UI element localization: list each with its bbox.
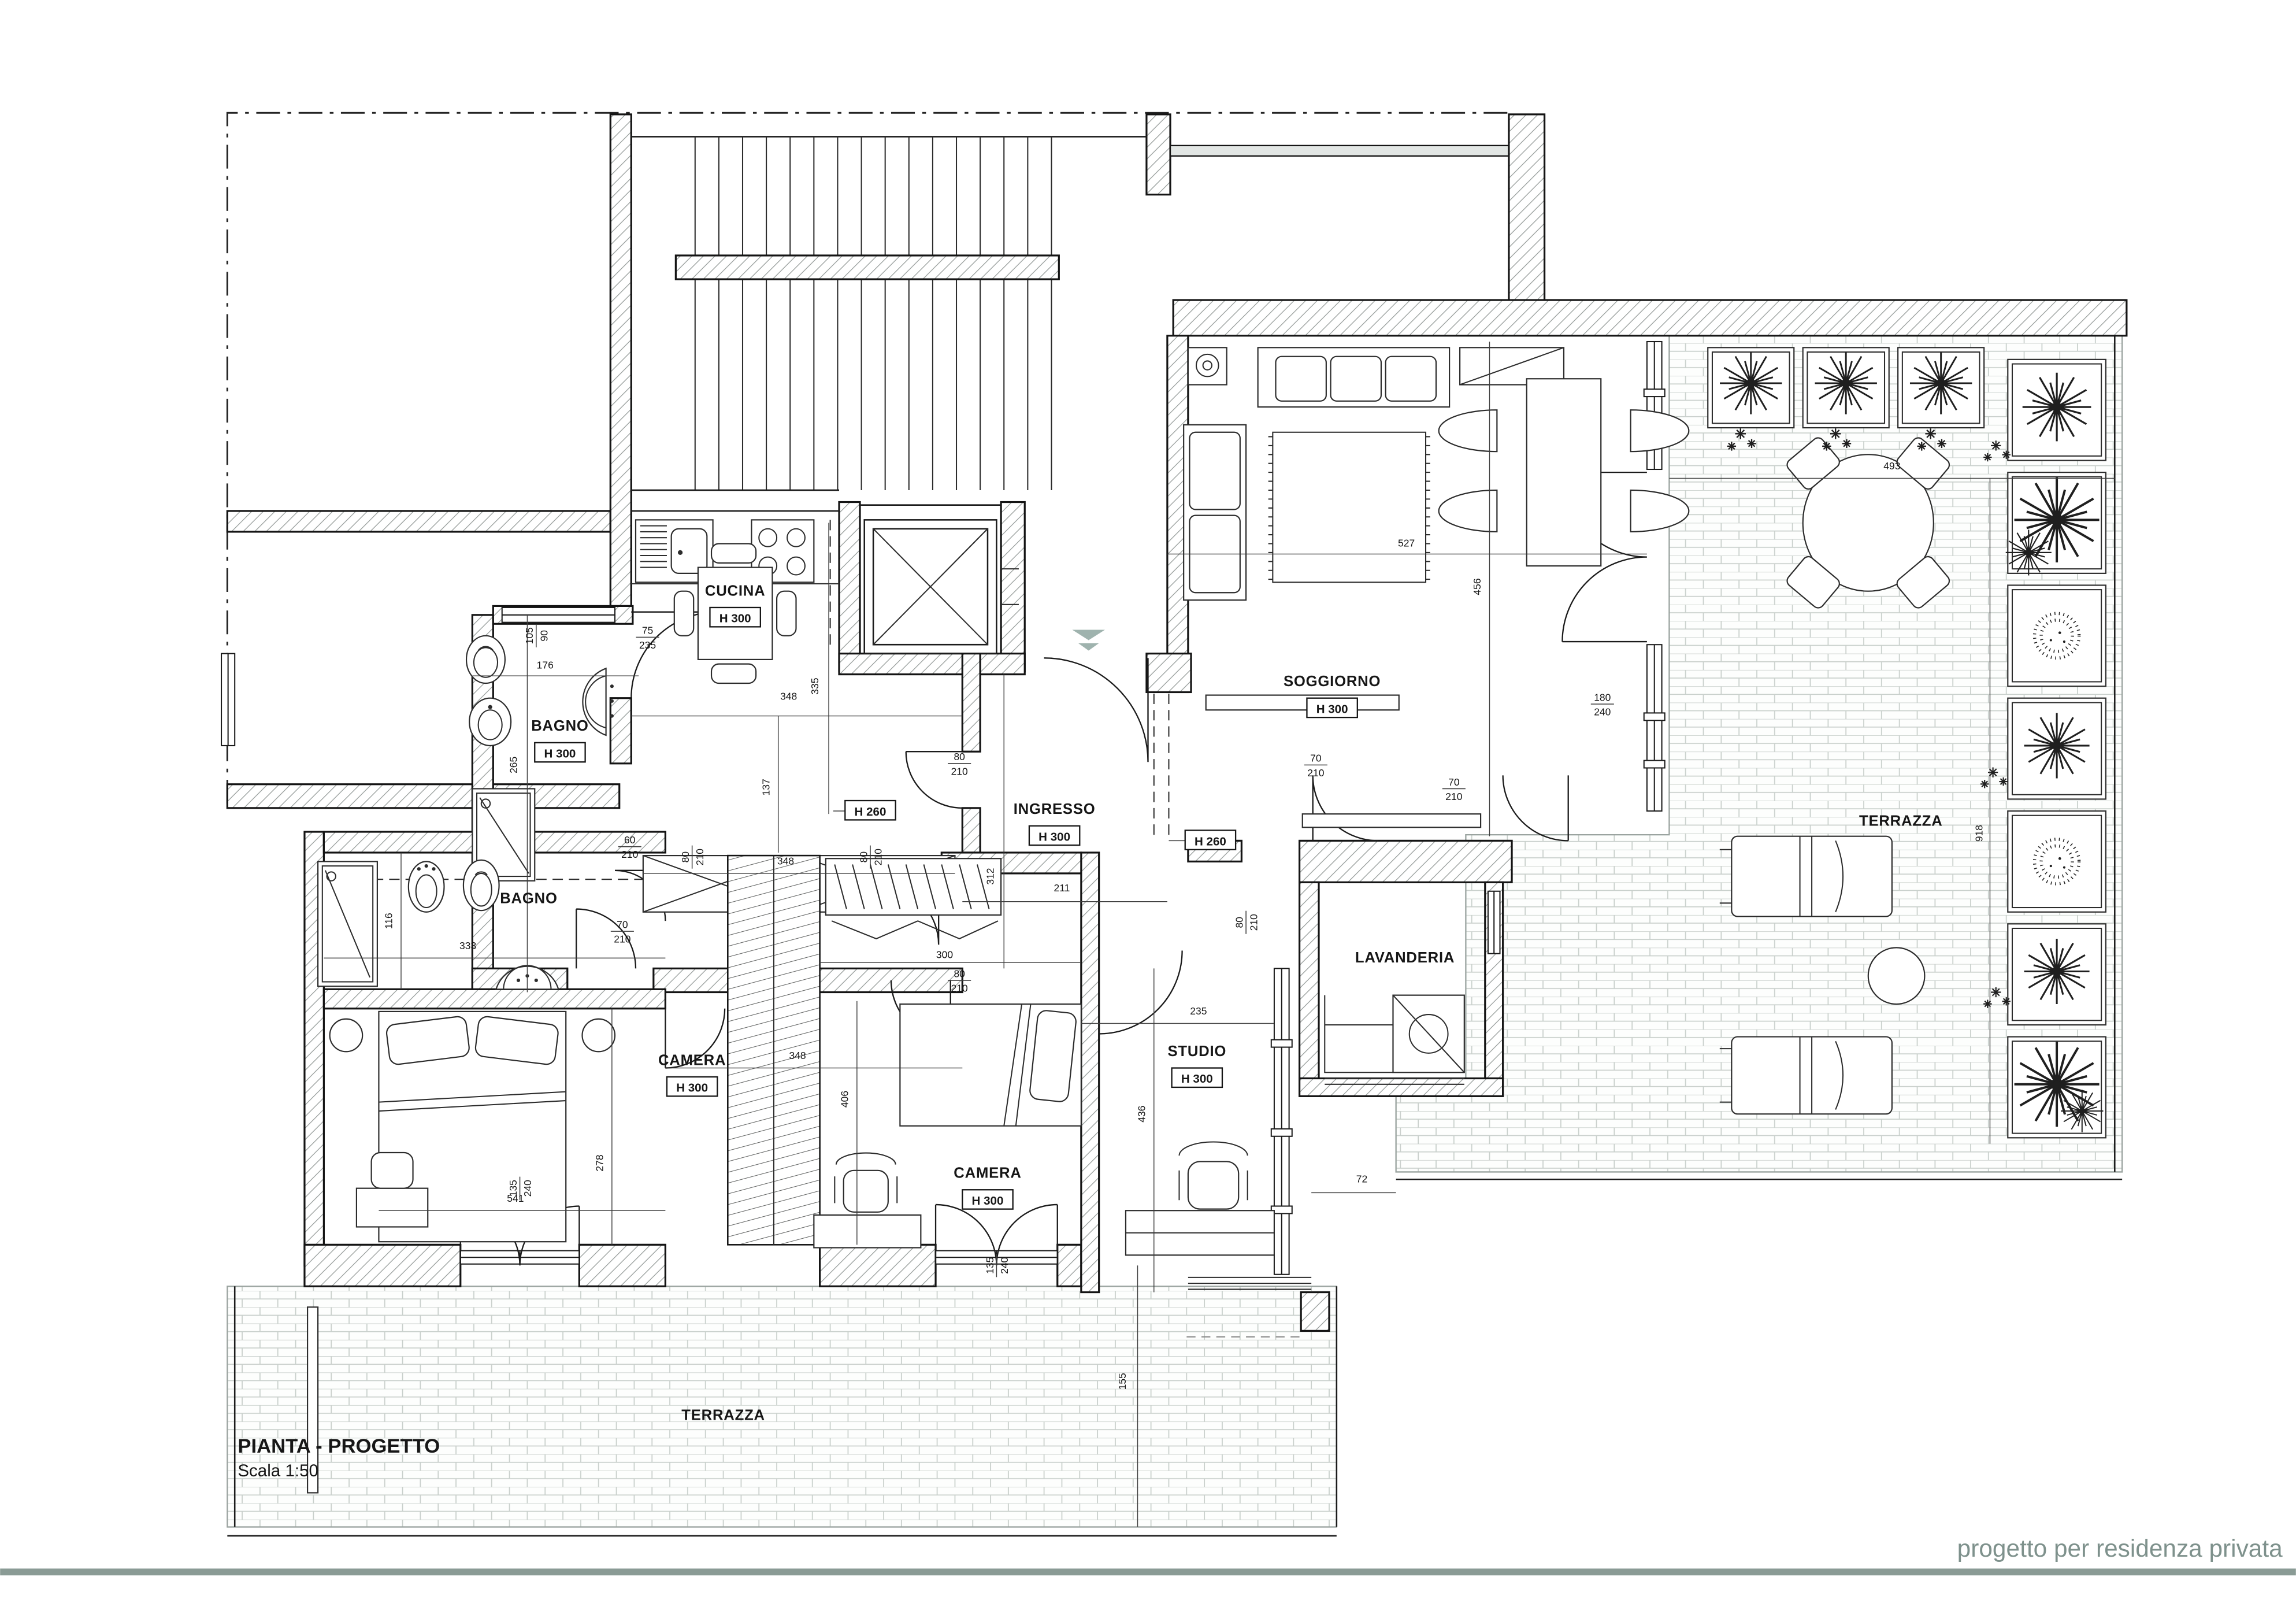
ceiling-height-label: H 260 <box>845 801 895 820</box>
svg-text:BAGNO: BAGNO <box>500 890 557 906</box>
svg-text:211: 211 <box>1054 882 1070 894</box>
svg-text:LAVANDERIA: LAVANDERIA <box>1355 950 1455 966</box>
svg-text:210: 210 <box>951 982 968 994</box>
dimension-label: 180240 <box>1591 691 1614 717</box>
chair <box>1179 1142 1247 1209</box>
svg-text:75: 75 <box>642 625 653 636</box>
svg-text:INGRESSO: INGRESSO <box>1014 801 1096 817</box>
room-label: STUDIOH 300 <box>1167 1043 1226 1087</box>
drawing-sheet: CUCINAH 300BAGNOH 300INGRESSOH 300SOGGIO… <box>0 0 2296 1622</box>
laundry-window <box>1488 891 1500 954</box>
dimension-label: 80210 <box>948 751 971 777</box>
dimension-label: 235 <box>1190 1005 1207 1017</box>
svg-text:137: 137 <box>760 779 771 795</box>
stair-landing <box>676 255 1059 279</box>
svg-text:80: 80 <box>680 851 691 863</box>
svg-text:H 300: H 300 <box>719 612 751 625</box>
terrace-bottom-paving <box>227 1286 1336 1536</box>
svg-text:210: 210 <box>614 934 630 945</box>
laundry-fixtures <box>1325 995 1464 1084</box>
svg-text:H 300: H 300 <box>1181 1072 1213 1086</box>
sun-lounger <box>1720 836 1892 917</box>
dimension-label: 137 <box>760 779 771 795</box>
svg-text:918: 918 <box>1974 825 1985 842</box>
svg-text:180: 180 <box>1594 691 1611 703</box>
svg-text:H 300: H 300 <box>1038 830 1070 843</box>
svg-text:70: 70 <box>617 919 628 930</box>
svg-text:H 260: H 260 <box>855 805 886 819</box>
room-label: INGRESSOH 300 <box>1014 801 1096 845</box>
dimension-label: 333 <box>459 940 476 951</box>
svg-text:60: 60 <box>624 834 636 846</box>
room-label: CAMERAH 300 <box>954 1165 1021 1209</box>
svg-text:406: 406 <box>839 1091 850 1108</box>
desk <box>814 1215 921 1248</box>
svg-text:235: 235 <box>639 639 656 651</box>
sideboard <box>1303 814 1481 827</box>
dimension-label: 527 <box>1398 538 1415 549</box>
camera1-furniture <box>330 1012 615 1242</box>
footer-bar <box>0 1568 2296 1575</box>
svg-text:116: 116 <box>383 913 395 929</box>
desk <box>357 1188 428 1227</box>
dimension-label: 918 <box>1974 825 1985 842</box>
svg-text:BAGNO: BAGNO <box>531 718 588 734</box>
svg-text:H 300: H 300 <box>1316 702 1348 716</box>
svg-text:265: 265 <box>507 757 519 773</box>
svg-text:348: 348 <box>777 856 794 867</box>
dimension-label: 155 <box>1117 1373 1128 1390</box>
rug <box>1268 432 1430 583</box>
sofa <box>1258 347 1449 407</box>
room-label: TERRAZZA <box>1859 813 1943 829</box>
dimension-label: 80210 <box>1233 911 1259 934</box>
svg-text:TERRAZZA: TERRAZZA <box>1859 813 1943 829</box>
svg-text:348: 348 <box>789 1050 806 1061</box>
svg-text:210: 210 <box>621 849 638 860</box>
turntable <box>1188 347 1227 384</box>
dimension-label: 348 <box>780 690 797 702</box>
floor-plan-svg: CUCINAH 300BAGNOH 300INGRESSOH 300SOGGIO… <box>0 0 2296 1622</box>
svg-text:527: 527 <box>1398 538 1415 549</box>
svg-text:80: 80 <box>858 851 869 863</box>
camera2-furniture <box>814 858 1081 1247</box>
svg-text:240: 240 <box>522 1180 533 1197</box>
dimension-label: 70210 <box>1304 753 1327 779</box>
nightstand <box>330 1019 363 1052</box>
neighbour-window <box>221 654 235 746</box>
svg-text:80: 80 <box>954 751 965 762</box>
toilet <box>463 860 499 910</box>
studio-door <box>1099 951 1182 1034</box>
svg-text:STUDIO: STUDIO <box>1167 1043 1226 1060</box>
ceiling-height-label: H 260 <box>1185 830 1236 849</box>
room-label: LAVANDERIA <box>1355 950 1455 966</box>
dimension-label: 211 <box>1054 882 1070 894</box>
nightstand <box>582 1019 615 1052</box>
svg-text:278: 278 <box>594 1154 605 1171</box>
svg-text:176: 176 <box>537 659 554 671</box>
svg-text:300: 300 <box>936 949 953 960</box>
shower <box>318 861 377 986</box>
dimension-label: 70210 <box>1442 776 1466 802</box>
dimension-label: 265 <box>507 757 519 773</box>
svg-text:235: 235 <box>1190 1005 1207 1017</box>
svg-text:H 260: H 260 <box>1195 835 1226 849</box>
dimension-label: 335 <box>809 678 821 695</box>
terrace-door <box>1503 775 1568 840</box>
studio-furniture <box>1126 1142 1274 1256</box>
entry-door <box>1044 658 1148 762</box>
chair <box>834 1153 897 1212</box>
room-label: BAGNO <box>500 890 557 906</box>
dimension-label: 312 <box>984 868 996 884</box>
svg-text:210: 210 <box>1307 767 1324 779</box>
dimension-label: 456 <box>1471 578 1483 595</box>
svg-text:210: 210 <box>694 849 706 865</box>
svg-text:240: 240 <box>999 1257 1010 1273</box>
svg-text:70: 70 <box>1448 776 1460 788</box>
room-label: BAGNOH 300 <box>531 718 588 762</box>
entry-marker-icon <box>1072 630 1105 640</box>
svg-text:210: 210 <box>1445 791 1462 802</box>
laundry-door <box>1313 775 1378 840</box>
dimension-label: 493 <box>1883 460 1900 472</box>
svg-text:CAMERA: CAMERA <box>658 1052 726 1068</box>
svg-text:105: 105 <box>524 627 535 644</box>
svg-text:135: 135 <box>507 1180 519 1197</box>
adjacent-unit-walls <box>221 511 620 808</box>
svg-text:436: 436 <box>1136 1106 1147 1123</box>
elevator <box>839 502 1025 675</box>
svg-text:456: 456 <box>1471 578 1483 595</box>
living-room-furniture <box>1184 347 1689 827</box>
room-label: CAMERAH 300 <box>658 1052 726 1096</box>
round-table <box>1785 435 1952 610</box>
dimension-label: 176 <box>537 659 554 671</box>
svg-text:H 300: H 300 <box>972 1194 1004 1208</box>
dimension-label: 278 <box>594 1154 605 1171</box>
bidet <box>409 861 444 912</box>
svg-text:H 300: H 300 <box>676 1082 708 1095</box>
svg-text:335: 335 <box>809 678 821 695</box>
svg-text:312: 312 <box>984 868 996 884</box>
dimension-label: 300 <box>936 949 953 960</box>
svg-text:333: 333 <box>459 940 476 951</box>
svg-text:210: 210 <box>951 765 968 777</box>
closet <box>826 858 1001 939</box>
drawing-scale: Scala 1:50 <box>238 1461 318 1480</box>
dimension-label: 348 <box>789 1050 806 1061</box>
svg-text:SOGGIORNO: SOGGIORNO <box>1284 673 1381 690</box>
svg-text:80: 80 <box>1233 917 1245 928</box>
dimension-label: 72 <box>1356 1173 1367 1184</box>
drawing-title: PIANTA - PROGETTO <box>238 1435 440 1457</box>
dimension-label: 406 <box>839 1091 850 1108</box>
side-table <box>1868 947 1925 1004</box>
sun-lounger <box>1720 1037 1892 1114</box>
svg-text:90: 90 <box>538 630 550 642</box>
dimension-label: 116 <box>383 913 395 929</box>
svg-text:135: 135 <box>984 1257 996 1274</box>
svg-text:CUCINA: CUCINA <box>705 583 766 599</box>
console <box>1206 695 1399 710</box>
dimension-label: 348 <box>777 856 794 867</box>
svg-text:493: 493 <box>1883 460 1900 472</box>
svg-text:H 300: H 300 <box>544 747 576 760</box>
svg-text:210: 210 <box>873 849 884 865</box>
chair <box>372 1153 413 1188</box>
svg-text:155: 155 <box>1117 1373 1128 1390</box>
svg-text:TERRAZZA: TERRAZZA <box>681 1408 765 1424</box>
svg-text:80: 80 <box>954 968 965 979</box>
svg-text:348: 348 <box>780 690 797 702</box>
project-caption: progetto per residenza privata <box>1957 1535 2283 1562</box>
dimension-label: 10590 <box>524 624 550 647</box>
bathroom-window <box>502 608 615 623</box>
chaise <box>1184 425 1246 600</box>
svg-text:72: 72 <box>1356 1173 1367 1184</box>
svg-text:70: 70 <box>1310 753 1322 764</box>
dimension-label: 436 <box>1136 1106 1147 1123</box>
wardrobe <box>728 856 819 1245</box>
room-label: TERRAZZA <box>681 1408 765 1424</box>
svg-text:CAMERA: CAMERA <box>954 1165 1021 1182</box>
svg-text:240: 240 <box>1594 706 1611 718</box>
svg-text:210: 210 <box>1248 914 1260 931</box>
